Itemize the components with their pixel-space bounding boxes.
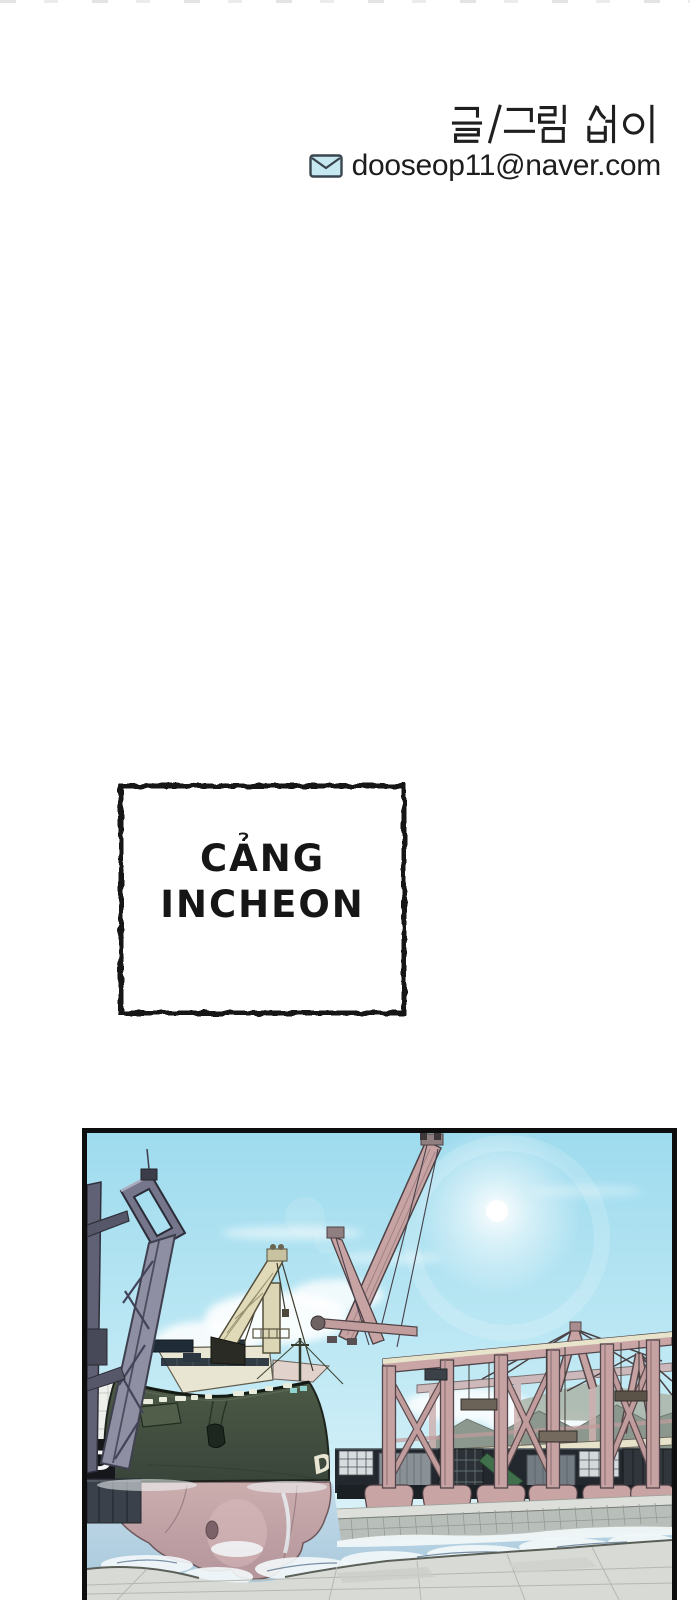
port-illustration: DC D	[87, 1133, 672, 1600]
envelope-icon	[309, 154, 343, 178]
author-byline-hangul-art	[451, 103, 661, 145]
port-illustration-panel: DC D	[82, 1128, 677, 1600]
author-byline: 글 /그림 섭이	[451, 103, 661, 150]
webtoon-page: 글 /그림 섭이 dooseop11@naver.com	[0, 0, 690, 1600]
caption-line-2: INCHEON	[118, 882, 407, 928]
caption-text: CẢNG INCHEON	[118, 836, 407, 928]
caption-line-1: CẢNG	[118, 836, 407, 882]
top-edge-artifact	[0, 0, 690, 3]
author-email: dooseop11@naver.com	[352, 149, 661, 183]
author-email-row: dooseop11@naver.com	[309, 149, 661, 183]
